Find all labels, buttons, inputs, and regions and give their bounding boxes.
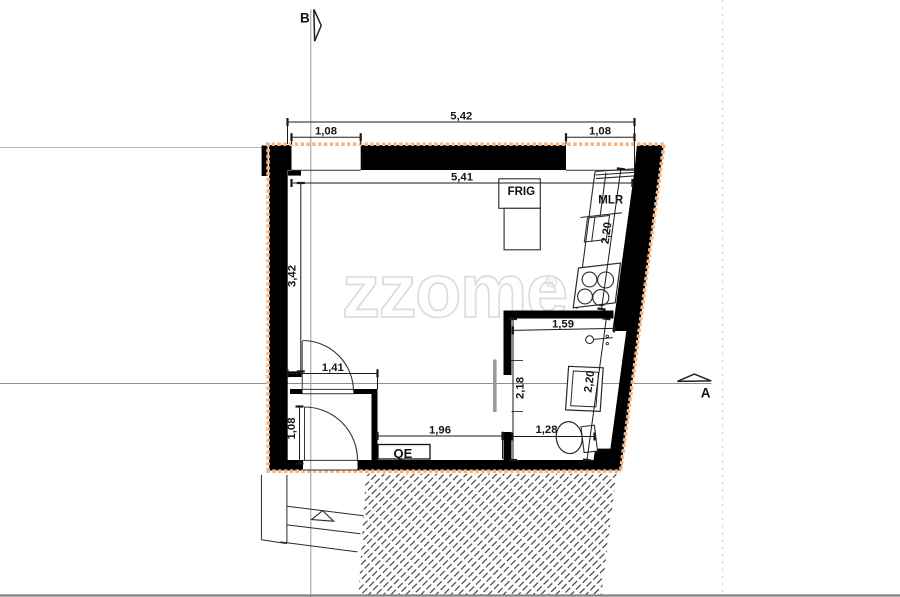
svg-text:1,08: 1,08 — [286, 418, 298, 440]
svg-text:FRIG: FRIG — [508, 186, 536, 198]
svg-text:1,96: 1,96 — [429, 424, 451, 436]
svg-text:MLR: MLR — [598, 194, 624, 206]
svg-text:R: R — [549, 278, 555, 287]
svg-text:1,08: 1,08 — [589, 126, 611, 138]
svg-text:B: B — [300, 10, 310, 25]
svg-text:5,41: 5,41 — [451, 172, 473, 184]
svg-text:2,18: 2,18 — [515, 377, 527, 399]
svg-text:1,41: 1,41 — [322, 362, 344, 374]
svg-text:1,59: 1,59 — [552, 319, 574, 331]
svg-text:QE: QE — [394, 446, 413, 461]
svg-text:1,08: 1,08 — [315, 126, 337, 138]
svg-text:1,28: 1,28 — [536, 424, 558, 436]
svg-text:zzome: zzome — [342, 249, 567, 334]
svg-text:3,42: 3,42 — [287, 265, 299, 287]
svg-text:A: A — [701, 386, 711, 401]
svg-text:5,42: 5,42 — [450, 110, 472, 122]
